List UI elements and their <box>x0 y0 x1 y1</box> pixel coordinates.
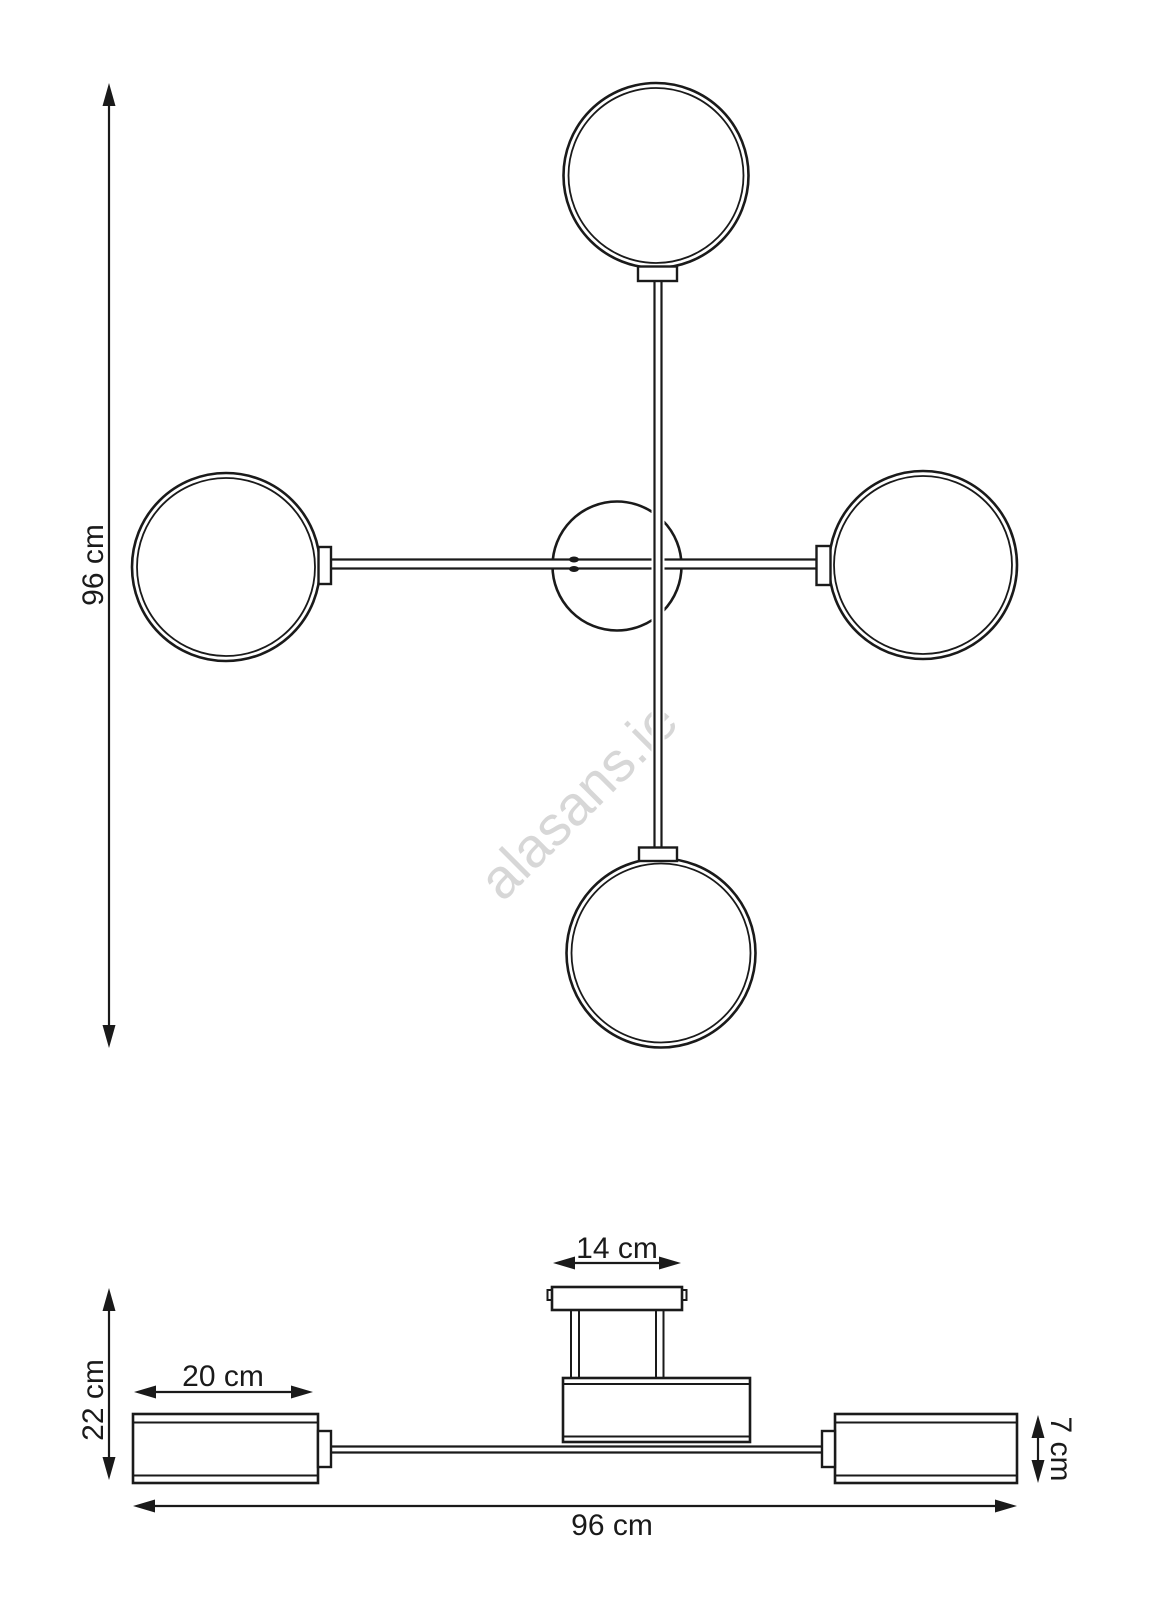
globe-left <box>132 473 320 661</box>
arrow-left-icon <box>133 1500 155 1513</box>
central-body <box>563 1378 750 1442</box>
central-body-outline <box>563 1378 750 1442</box>
side-height-dimension: 22 cm <box>77 1288 116 1480</box>
lamp-technical-drawing-page: alasans.ie 96 cm <box>0 0 1149 1600</box>
arrow-up-icon <box>103 83 116 106</box>
top-view: 96 cm <box>77 83 1017 1048</box>
socket-top <box>638 267 677 282</box>
arrow-down-icon <box>103 1025 116 1048</box>
top-view-height-label: 96 cm <box>77 524 110 606</box>
arrow-down-icon <box>1032 1460 1045 1483</box>
suspension-rods <box>571 1310 664 1378</box>
side-arm <box>331 1447 823 1453</box>
globe-bottom-outer <box>567 859 756 1048</box>
arrow-left-icon <box>134 1386 156 1399</box>
total-width-label: 96 cm <box>571 1509 653 1542</box>
shade-height-label: 7 cm <box>1044 1416 1077 1481</box>
globe-right-outer <box>829 471 1017 659</box>
left-shade-outline <box>133 1414 318 1483</box>
right-shade-outline <box>835 1414 1017 1483</box>
globe-top-inner <box>569 88 744 263</box>
socket-bottom <box>639 848 677 862</box>
canopy-width-dimension: 14 cm <box>553 1232 681 1270</box>
arrow-up-icon <box>1032 1415 1045 1438</box>
vertical-arm <box>652 281 665 848</box>
right-shade <box>835 1414 1017 1483</box>
arm-fixing-dot-top <box>569 557 579 563</box>
arrow-right-icon <box>995 1500 1017 1513</box>
shade-height-dimension: 7 cm <box>1032 1415 1078 1483</box>
globe-top-outer <box>564 83 749 268</box>
arrow-right-icon <box>659 1257 681 1270</box>
globe-bottom <box>567 859 756 1048</box>
globe-right <box>829 471 1017 659</box>
canopy-width-label: 14 cm <box>576 1232 658 1265</box>
globe-left-inner <box>137 478 315 656</box>
globe-left-outer <box>132 473 320 661</box>
globe-right-inner <box>834 476 1012 654</box>
ceiling-plate <box>548 1287 687 1310</box>
top-view-height-dimension: 96 cm <box>77 83 116 1048</box>
globe-top <box>564 83 749 268</box>
socket-right <box>817 546 831 585</box>
shade-width-label: 20 cm <box>182 1360 264 1393</box>
lamp-technical-drawing: alasans.ie 96 cm <box>0 0 1149 1600</box>
socket-left <box>319 547 332 584</box>
right-shade-bracket <box>822 1431 835 1467</box>
total-width-dimension: 96 cm <box>133 1500 1017 1543</box>
ceiling-plate-outline <box>552 1287 682 1310</box>
shade-width-dimension: 20 cm <box>134 1360 313 1399</box>
arrow-right-icon <box>291 1386 313 1399</box>
arrow-left-icon <box>553 1257 575 1270</box>
arrow-up-icon <box>103 1288 116 1311</box>
side-height-label: 22 cm <box>77 1359 110 1441</box>
left-shade-bracket <box>318 1431 331 1467</box>
globe-bottom-inner <box>572 864 751 1043</box>
side-view: 14 cm 20 cm 22 cm 7 cm <box>77 1232 1077 1542</box>
arrow-down-icon <box>103 1457 116 1480</box>
left-shade <box>133 1414 318 1483</box>
arm-fixing-dot-bottom <box>569 566 579 572</box>
